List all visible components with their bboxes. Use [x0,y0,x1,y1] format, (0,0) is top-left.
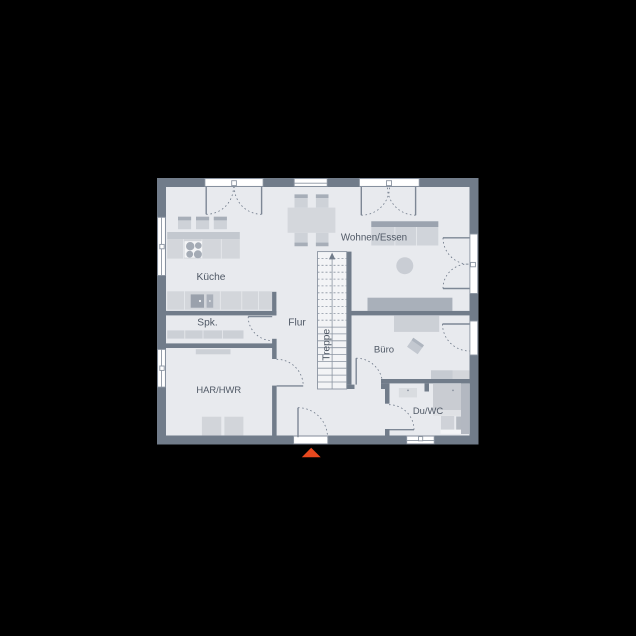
svg-text:Spk.: Spk. [197,318,217,329]
svg-text:Du/WC: Du/WC [413,405,443,416]
svg-text:Küche: Küche [197,272,226,283]
svg-text:HAR/HWR: HAR/HWR [196,384,241,395]
svg-text:Flur: Flur [288,318,306,329]
svg-text:Büro: Büro [374,344,394,355]
svg-text:Wohnen/Essen: Wohnen/Essen [341,232,407,243]
svg-text:Treppe: Treppe [321,329,332,361]
